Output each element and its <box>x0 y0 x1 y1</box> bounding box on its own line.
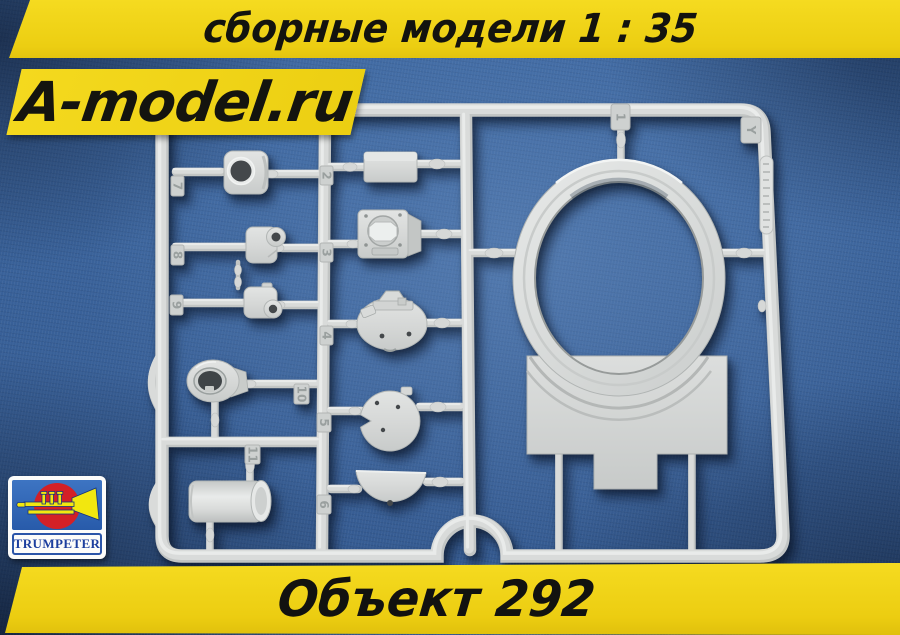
svg-text:5: 5 <box>317 418 331 426</box>
svg-text:2: 2 <box>320 171 334 179</box>
part-tag-2: 2 <box>320 166 334 185</box>
sprue-part-5 <box>361 387 420 451</box>
trumpet-icon <box>12 480 102 530</box>
sprue-part-9 <box>244 283 282 318</box>
part-tag-1: 1 <box>611 104 630 130</box>
svg-text:1: 1 <box>614 113 628 121</box>
svg-text:7: 7 <box>171 182 185 190</box>
svg-text:6: 6 <box>317 500 331 508</box>
part-tag-10: 10 <box>294 384 309 404</box>
sprue-part-7 <box>224 151 268 194</box>
sprue-part-1-turret-ring <box>513 160 727 489</box>
svg-text:3: 3 <box>320 248 334 256</box>
sprue-mold-code-strip <box>760 156 773 234</box>
trumpeter-brand-text: TRUMPETER <box>12 533 102 555</box>
site-logo-banner: A-model.ru <box>6 69 365 135</box>
sprue-part-8 <box>246 227 286 263</box>
bottom-banner-text: Объект 292 <box>276 574 625 624</box>
sprue-part-6 <box>356 471 426 506</box>
svg-text:9: 9 <box>170 301 184 309</box>
part-tag-3: 3 <box>320 243 334 262</box>
part-tag-5: 5 <box>317 413 331 432</box>
sprue-part-3 <box>358 210 421 258</box>
sprue-part-2 <box>364 152 417 182</box>
part-tag-8: 8 <box>171 245 185 265</box>
svg-text:Y: Y <box>744 125 758 135</box>
top-banner: сборные модели 1 : 35 <box>0 0 900 58</box>
product-photo: 1 2 3 4 5 6 7 <box>0 0 900 635</box>
site-logo-text: A-model.ru <box>15 75 356 130</box>
sprue-letter-tag: Y <box>741 117 761 143</box>
part-tag-4: 4 <box>320 326 334 345</box>
sprue-part-11 <box>189 481 271 523</box>
part-tag-7: 7 <box>171 176 185 196</box>
svg-text:4: 4 <box>320 331 334 339</box>
part-tag-11: 11 <box>245 445 260 464</box>
top-banner-text: сборные модели 1 : 35 <box>201 9 699 49</box>
svg-text:8: 8 <box>171 251 185 259</box>
sprue-part-4 <box>357 291 427 351</box>
svg-text:11: 11 <box>246 446 260 463</box>
bottom-banner: Объект 292 <box>0 563 900 635</box>
sprue-part-10 <box>187 360 248 402</box>
part-tag-6: 6 <box>317 495 331 514</box>
trumpeter-logo: TRUMPETER <box>8 476 106 559</box>
part-tag-9: 9 <box>170 295 184 315</box>
svg-text:10: 10 <box>295 386 309 403</box>
